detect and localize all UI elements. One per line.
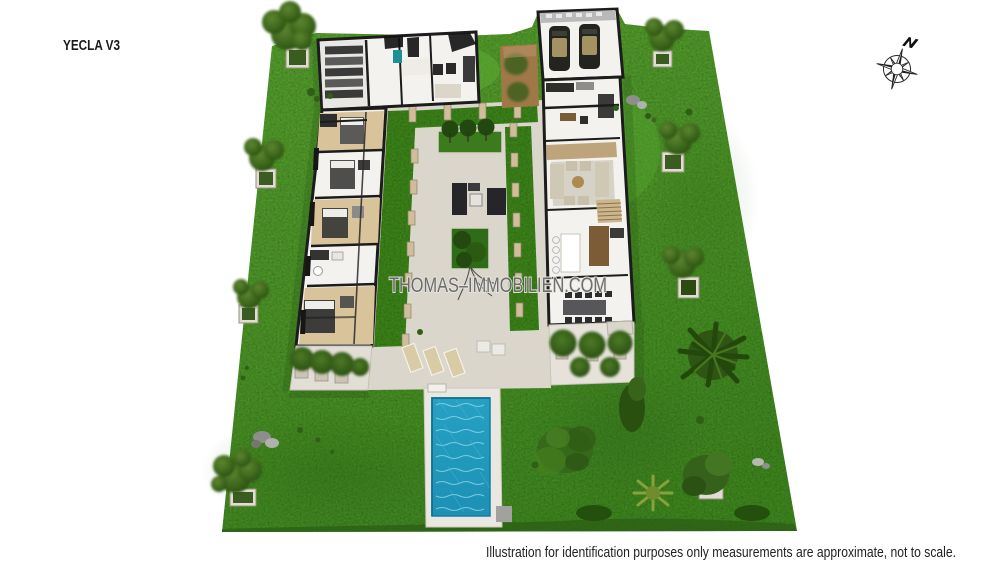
svg-text:THOMAS–IMMOBILIEN.COM: THOMAS–IMMOBILIEN.COM bbox=[389, 274, 607, 297]
svg-text:Illustration for identificatio: Illustration for identification purposes… bbox=[486, 545, 956, 561]
svg-text:YECLA V3: YECLA V3 bbox=[63, 38, 120, 54]
